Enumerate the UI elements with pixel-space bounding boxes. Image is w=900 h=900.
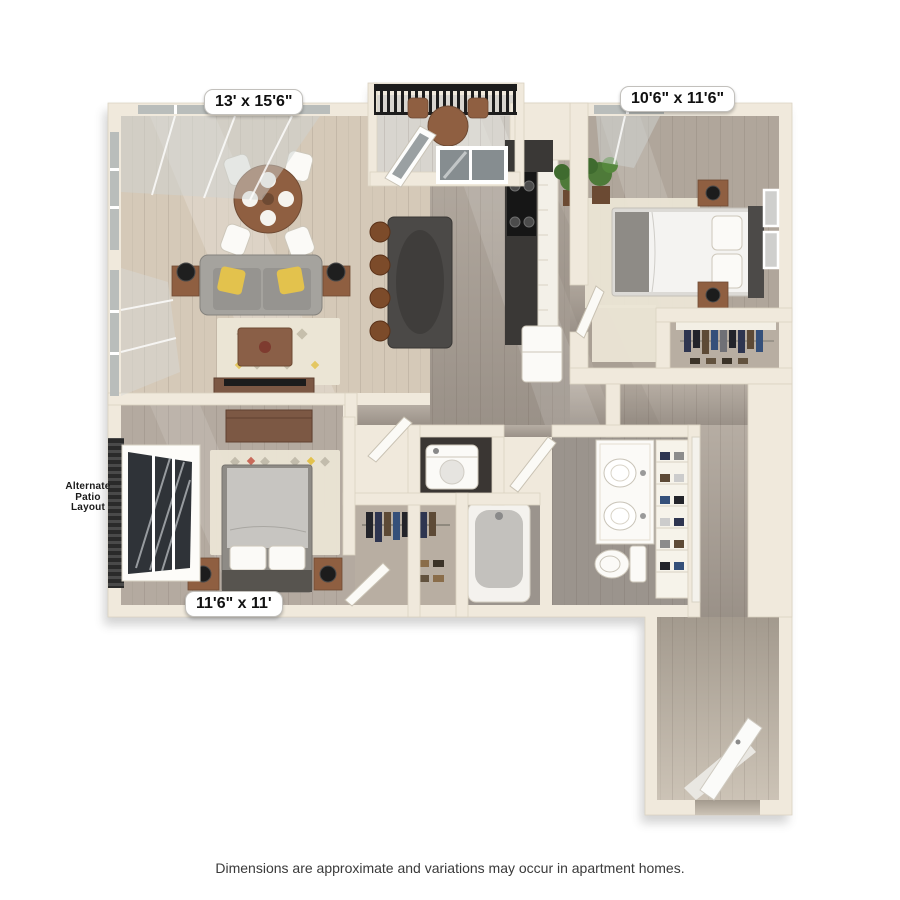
speaker-lamp bbox=[320, 566, 336, 582]
dresser bbox=[226, 410, 312, 442]
tv-console bbox=[214, 378, 314, 395]
sofa bbox=[200, 255, 322, 315]
bed bbox=[612, 206, 764, 298]
kitchen-corner-counter bbox=[505, 140, 553, 172]
sink bbox=[604, 459, 636, 487]
pillow bbox=[712, 216, 742, 250]
double-vanity bbox=[596, 440, 654, 544]
headboard bbox=[748, 206, 764, 298]
sink bbox=[604, 502, 636, 530]
balcony-window bbox=[438, 148, 506, 182]
bar-stool bbox=[370, 321, 390, 341]
bathtub bbox=[468, 503, 530, 602]
alternate-patio-note: Alternate Patio Layout bbox=[44, 482, 132, 514]
label-bedroom-second-dimensions: 11'6" x 11' bbox=[185, 591, 283, 617]
closet-mirror-door bbox=[692, 437, 700, 602]
coffee-table bbox=[238, 328, 292, 366]
bar-stool bbox=[370, 288, 390, 308]
throw-pillow bbox=[276, 266, 305, 295]
disclaimer-text: Dimensions are approximate and variation… bbox=[0, 860, 900, 876]
bar-stool bbox=[370, 222, 390, 242]
label-bedroom-primary-dimensions: 10'6" x 11'6" bbox=[620, 86, 735, 112]
bar-stool bbox=[370, 255, 390, 275]
patio-table bbox=[428, 106, 468, 146]
floor-plan-rendering bbox=[0, 0, 900, 900]
balcony-railing bbox=[374, 84, 517, 91]
refrigerator bbox=[522, 326, 562, 382]
pillow bbox=[230, 546, 266, 570]
door-knob bbox=[736, 740, 741, 745]
floor-plan-page: 13' x 15'6" 10'6" x 11'6" 11'6" x 11' Al… bbox=[0, 0, 900, 900]
throw-blanket bbox=[615, 212, 649, 292]
faucet bbox=[640, 513, 646, 519]
pillow bbox=[269, 546, 305, 570]
tv bbox=[224, 379, 306, 386]
throw-pillow bbox=[217, 266, 247, 296]
linen-shelves bbox=[656, 440, 688, 598]
laundry-closet bbox=[426, 445, 478, 489]
lamp bbox=[706, 288, 720, 302]
bathroom bbox=[595, 440, 688, 598]
headboard bbox=[222, 570, 312, 592]
label-living-dining-dimensions: 13' x 15'6" bbox=[204, 89, 303, 115]
lamp bbox=[706, 186, 720, 200]
bed bbox=[222, 465, 312, 592]
faucet bbox=[640, 470, 646, 476]
tub-faucet bbox=[495, 512, 503, 520]
